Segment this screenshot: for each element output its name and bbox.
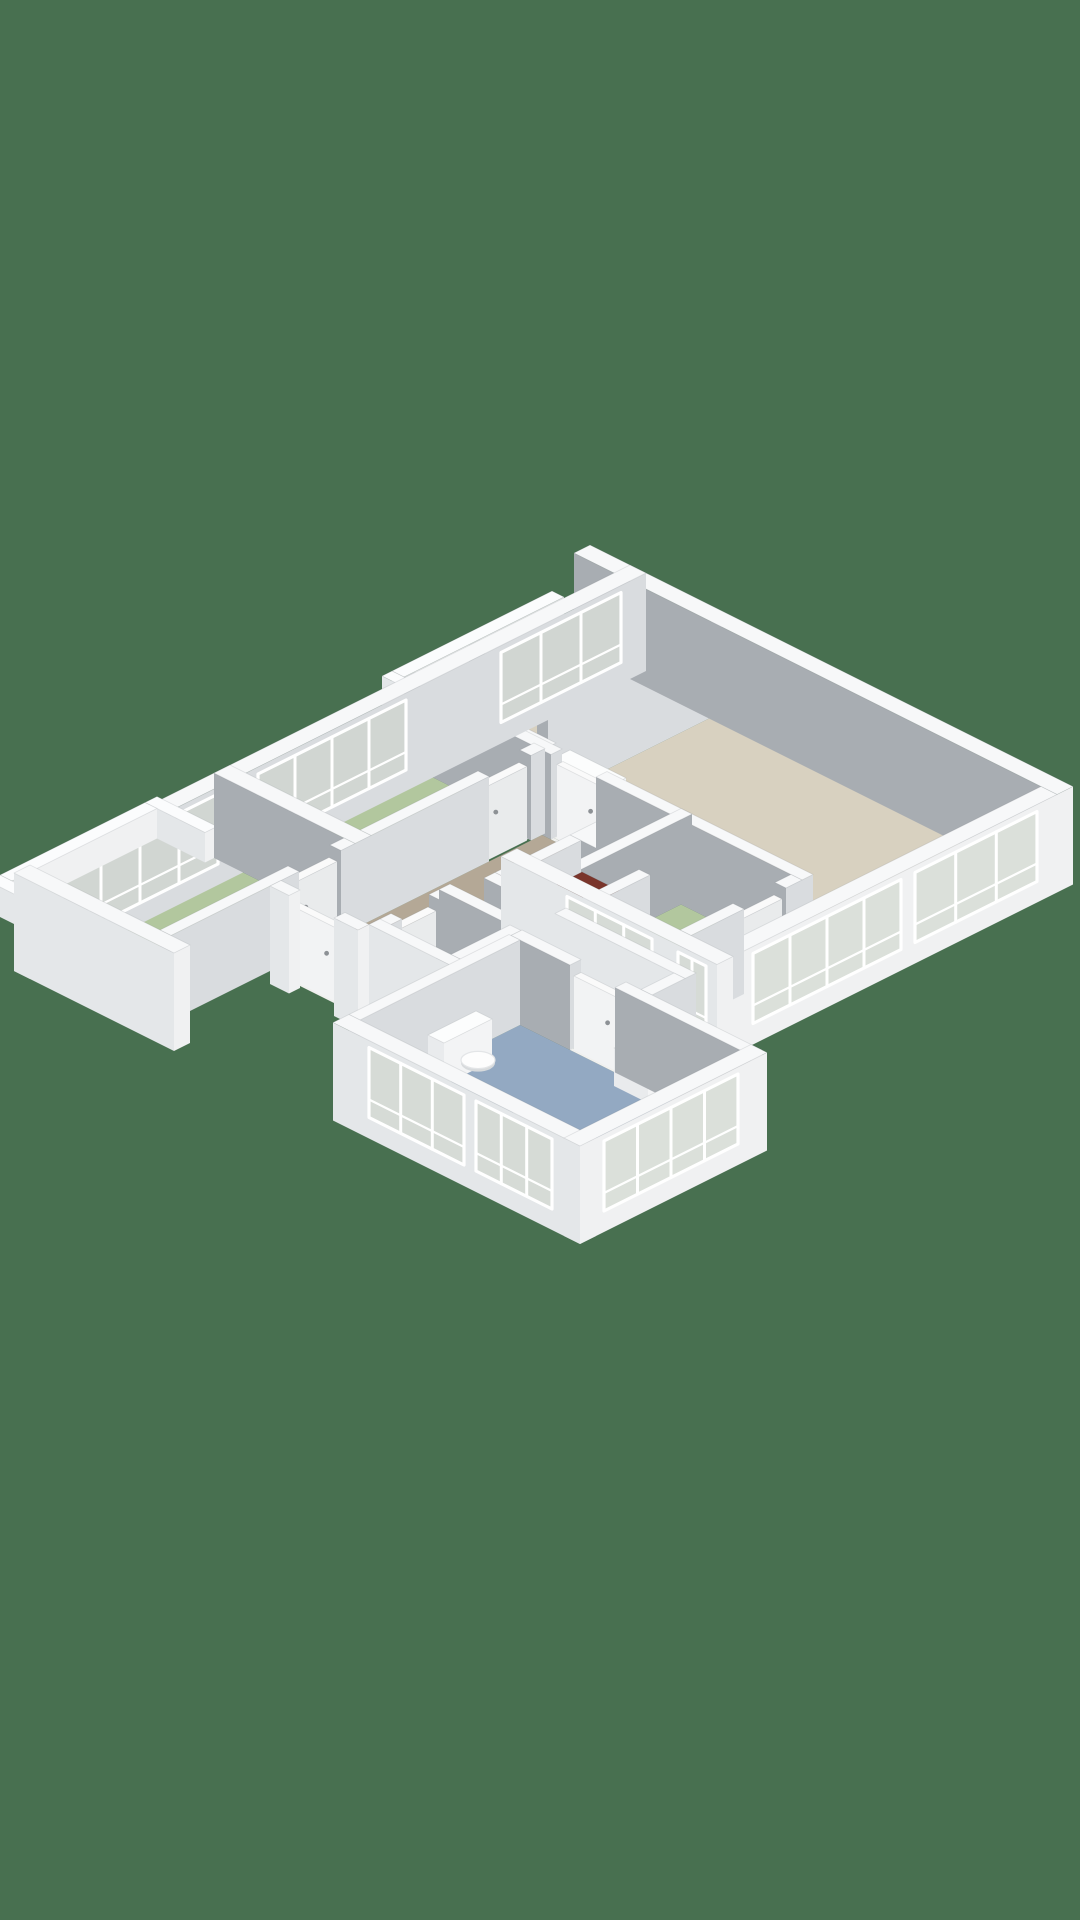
door-living-hall-handle — [588, 809, 593, 814]
door-bathroom-handle — [605, 1020, 610, 1025]
bedroom1-east-wall-a-face-se — [531, 749, 545, 841]
bathroom-toilet-bowl — [461, 1051, 495, 1068]
entry-south-wall-a — [270, 881, 300, 994]
leftwing-south-wall-face-se — [174, 945, 190, 1051]
entry-south-wall-a-face-se — [289, 890, 300, 994]
page-background — [0, 0, 1080, 1920]
bathroom-toilet-bowl — [461, 1051, 495, 1071]
bathroom-east-wall-face-sw — [564, 1138, 580, 1244]
entry-south-wall-a-face-sw — [270, 886, 289, 994]
ne-facade-wall-face-se — [1057, 787, 1073, 893]
door-bedroom1-handle — [493, 810, 498, 815]
floorplan-svg — [0, 0, 1080, 1920]
bedrooms-divider-wall-face-se — [355, 836, 371, 929]
door-entry-handle — [324, 951, 329, 956]
